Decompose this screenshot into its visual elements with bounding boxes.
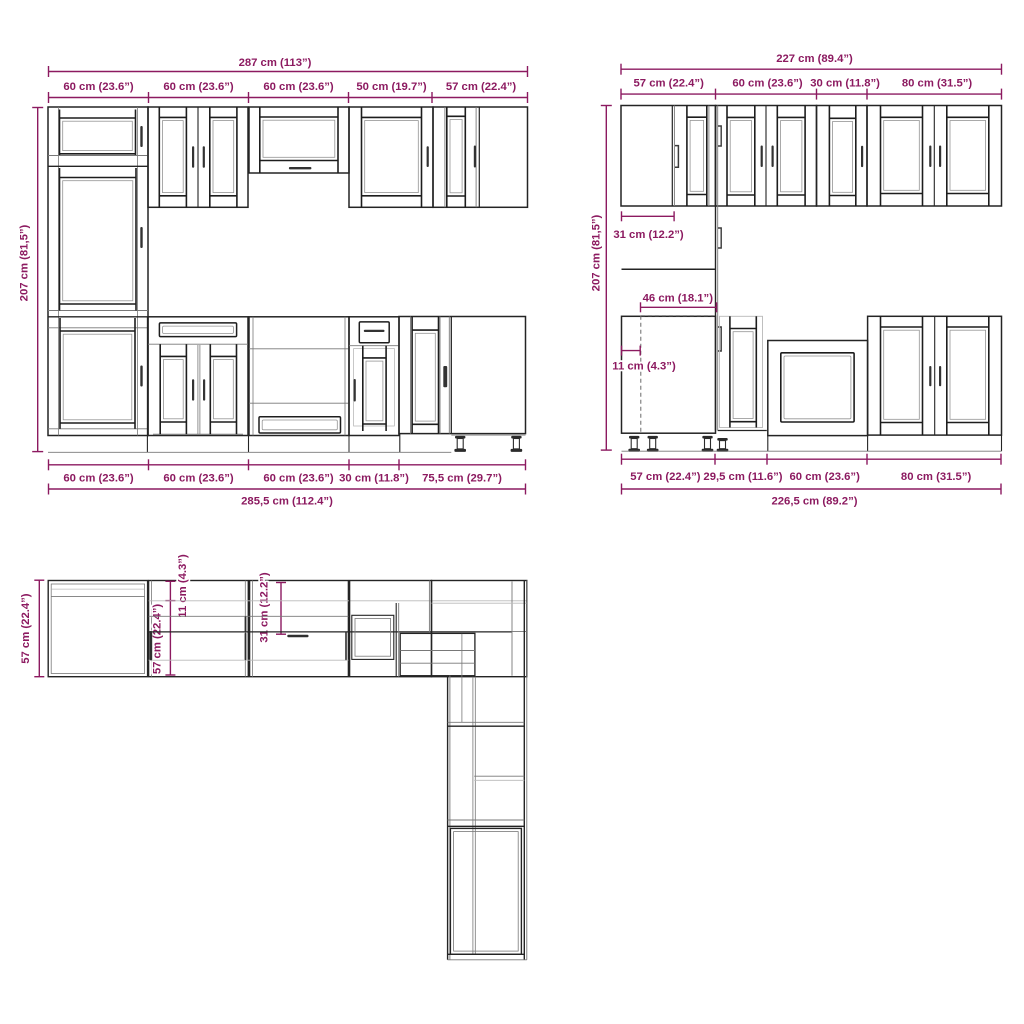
svg-text:80 cm (31.5”): 80 cm (31.5”): [902, 78, 973, 90]
svg-text:57 cm (22.4”): 57 cm (22.4”): [446, 81, 517, 93]
svg-text:60 cm (23.6”): 60 cm (23.6”): [732, 78, 803, 90]
svg-text:60 cm (23.6”): 60 cm (23.6”): [263, 473, 334, 485]
svg-text:227 cm (89.4”): 227 cm (89.4”): [776, 53, 853, 65]
svg-text:60 cm (23.6”): 60 cm (23.6”): [163, 473, 234, 485]
svg-text:57 cm (22.4”): 57 cm (22.4”): [634, 78, 705, 90]
svg-text:60 cm (23.6”): 60 cm (23.6”): [790, 471, 861, 483]
svg-text:60 cm (23.6”): 60 cm (23.6”): [163, 81, 234, 93]
svg-text:30 cm (11.8”): 30 cm (11.8”): [339, 473, 409, 485]
svg-text:207 cm (81,5”): 207 cm (81,5”): [591, 214, 603, 291]
svg-text:30 cm (11.8”): 30 cm (11.8”): [810, 78, 880, 90]
svg-text:60 cm (23.6”): 60 cm (23.6”): [63, 81, 134, 93]
svg-text:60 cm (23.6”): 60 cm (23.6”): [63, 473, 134, 485]
svg-text:57 cm (22.4”): 57 cm (22.4”): [152, 604, 164, 675]
svg-text:207 cm (81,5”): 207 cm (81,5”): [19, 224, 31, 301]
svg-text:57 cm (22.4”): 57 cm (22.4”): [630, 471, 701, 483]
svg-text:80 cm (31.5”): 80 cm (31.5”): [901, 471, 972, 483]
svg-text:75,5 cm (29.7”): 75,5 cm (29.7”): [422, 473, 502, 485]
svg-text:57 cm (22.4”): 57 cm (22.4”): [20, 593, 32, 664]
svg-text:287 cm (113”): 287 cm (113”): [239, 57, 312, 69]
svg-text:46 cm (18.1”): 46 cm (18.1”): [643, 293, 714, 305]
svg-text:29,5 cm (11.6”): 29,5 cm (11.6”): [703, 471, 782, 483]
svg-text:11 cm (4.3”): 11 cm (4.3”): [612, 361, 676, 373]
svg-text:285,5 cm (112.4”): 285,5 cm (112.4”): [241, 496, 333, 508]
svg-text:60 cm (23.6”): 60 cm (23.6”): [263, 81, 334, 93]
svg-text:50 cm (19.7”): 50 cm (19.7”): [356, 81, 427, 93]
svg-text:11 cm (4.3”): 11 cm (4.3”): [177, 554, 189, 618]
svg-text:226,5 cm (89.2”): 226,5 cm (89.2”): [771, 496, 857, 508]
svg-text:31 cm (12.2”): 31 cm (12.2”): [613, 229, 684, 241]
